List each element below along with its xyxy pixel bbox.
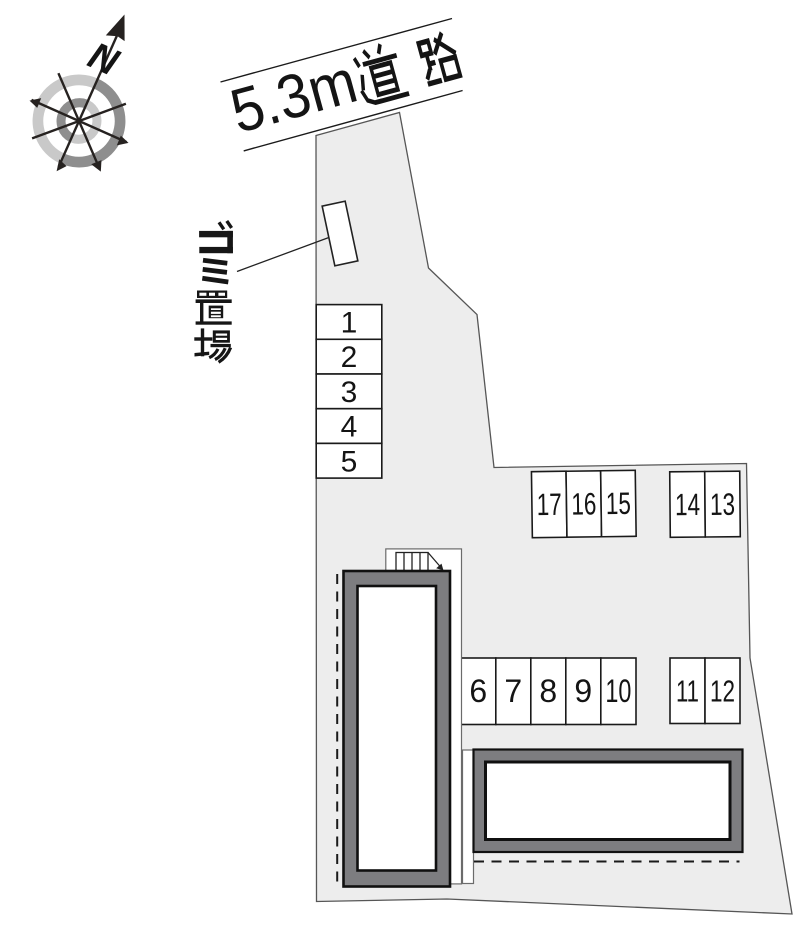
svg-text:9: 9 (574, 673, 592, 709)
svg-text:2: 2 (341, 341, 358, 374)
svg-text:15: 15 (606, 486, 631, 521)
svg-text:1: 1 (341, 307, 358, 340)
svg-text:16: 16 (571, 486, 596, 521)
svg-text:13: 13 (710, 487, 735, 522)
svg-text:8: 8 (539, 673, 557, 709)
svg-text:6: 6 (469, 673, 487, 709)
svg-text:14: 14 (675, 487, 700, 522)
svg-text:11: 11 (676, 674, 699, 709)
svg-text:10: 10 (605, 673, 631, 709)
svg-text:17: 17 (536, 487, 561, 522)
svg-text:5: 5 (341, 445, 358, 478)
svg-text:12: 12 (710, 674, 735, 709)
svg-text:4: 4 (341, 411, 358, 444)
svg-text:7: 7 (504, 673, 522, 709)
svg-text:3: 3 (341, 376, 358, 409)
